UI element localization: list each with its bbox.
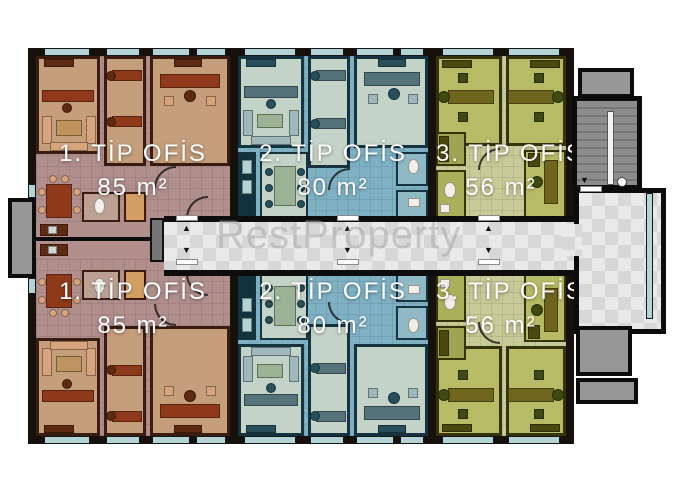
visitor-chair (534, 370, 544, 380)
cabinet (246, 59, 276, 67)
unit-type-label: 1. TİP OFİS (36, 140, 230, 168)
window (508, 48, 560, 56)
door-arrow-up-icon: ▲ (343, 224, 352, 233)
corridor (164, 216, 578, 276)
door-leaf (337, 215, 359, 221)
floor-plan: 1. TİP OFİS 85 m² (0, 0, 679, 480)
chair (106, 365, 116, 375)
cabinet (174, 59, 202, 67)
window (310, 48, 344, 56)
party-wall (36, 237, 150, 241)
sofa (243, 110, 253, 136)
sofa (50, 341, 88, 350)
door-arrow-up-icon: ▲ (182, 224, 191, 233)
cabinet (174, 425, 202, 433)
visitor-chair (368, 388, 378, 398)
desk (448, 388, 494, 402)
cabinet (530, 424, 560, 432)
desk (112, 365, 142, 376)
visitor-chair (458, 370, 468, 380)
unit-type3-top: 3. TİP OFİS 56 m² (436, 56, 566, 222)
visitor-chair (458, 73, 468, 83)
chair (310, 363, 320, 373)
chair (552, 91, 564, 103)
unit-type1-bottom: 1. TİP OFİS 85 m² (36, 258, 230, 436)
cabinet (378, 59, 406, 67)
desk (364, 72, 420, 86)
door-arrow-down-icon: ▼ (484, 246, 493, 255)
balcony-bottom-1 (576, 326, 632, 376)
door-leaf (580, 186, 602, 192)
door-arrow-down-icon: ▼ (182, 246, 191, 255)
window (508, 436, 560, 444)
desk (244, 86, 298, 98)
unit-area-label: 85 m² (36, 312, 230, 340)
unit-area-label: 80 m² (238, 174, 428, 202)
visitor-chair (458, 112, 468, 122)
door-leaf (337, 259, 359, 265)
visitor-chair (458, 409, 468, 419)
cabinet (44, 425, 74, 433)
window (106, 436, 140, 444)
chair (266, 383, 276, 393)
stair-newel (617, 177, 627, 187)
window (152, 48, 190, 56)
cabinet (44, 59, 74, 67)
window (44, 436, 90, 444)
glass-wall (646, 193, 653, 319)
desk (508, 388, 554, 402)
desk (112, 70, 142, 81)
chair (62, 103, 72, 113)
stair-handrail (607, 111, 614, 185)
door-leaf (478, 259, 500, 265)
unit-type2-top: 2. TİP OFİS 80 m² (238, 56, 428, 222)
window (152, 436, 190, 444)
unit-area-label: 56 m² (436, 312, 566, 340)
visitor-chair (408, 388, 418, 398)
desk (160, 74, 220, 88)
desk (316, 118, 346, 129)
chair (310, 119, 320, 129)
visitor-chair (534, 73, 544, 83)
window (400, 436, 424, 444)
coffee-table (56, 120, 82, 136)
window (310, 436, 344, 444)
chair (310, 71, 320, 81)
desk (42, 390, 94, 402)
visitor-chair (368, 94, 378, 104)
chair (266, 99, 276, 109)
chair (184, 90, 196, 102)
cabinet (442, 424, 472, 432)
sofa (42, 348, 52, 376)
cabinet (378, 425, 406, 433)
window (244, 48, 296, 56)
chair (438, 389, 450, 401)
desk (160, 404, 220, 418)
window (106, 48, 140, 56)
unit-type-label: 2. TİP OFİS (238, 278, 428, 306)
cabinet (442, 60, 472, 68)
unit-type-label: 1. TİP OFİS (36, 278, 230, 306)
visitor-chair (206, 386, 216, 396)
elevator-shaft (150, 218, 164, 262)
coffee-table (257, 114, 283, 128)
sofa (251, 347, 291, 356)
chair (552, 389, 564, 401)
unit-type3-bottom: 3. TİP OFİS 56 m² (436, 258, 566, 436)
coffee-table (56, 356, 82, 372)
visitor-chair (164, 96, 174, 106)
window (196, 48, 226, 56)
unit-area-label: 56 m² (436, 174, 566, 202)
sofa (243, 356, 253, 382)
unit-type-label: 2. TİP OFİS (238, 140, 428, 168)
window (442, 436, 494, 444)
chair (38, 206, 46, 214)
window (196, 436, 226, 444)
door-leaf (176, 215, 198, 221)
sofa (289, 356, 299, 382)
visitor-chair (534, 409, 544, 419)
chair (438, 91, 450, 103)
door-arrow-up-icon: ▲ (484, 224, 493, 233)
window (28, 278, 36, 294)
desk (364, 406, 420, 420)
chair (388, 392, 400, 404)
chair (73, 206, 81, 214)
desk (448, 90, 494, 104)
chair (62, 379, 72, 389)
sink (48, 246, 57, 254)
desk (316, 70, 346, 81)
door-leaf (478, 215, 500, 221)
sofa (289, 110, 299, 136)
visitor-chair (206, 96, 216, 106)
sink (440, 204, 450, 213)
balcony-top (578, 68, 634, 98)
coffee-table (257, 364, 283, 378)
chair (184, 390, 196, 402)
window (44, 48, 90, 56)
unit-type2-bottom: 2. TİP OFİS 80 m² (238, 258, 428, 436)
unit-area-label: 85 m² (36, 174, 230, 202)
stair-direction-arrow-icon: ▼ (580, 176, 589, 185)
window (244, 436, 296, 444)
unit-type-label: 3. TİP OFİS (436, 140, 566, 168)
window (356, 436, 394, 444)
cabinet (530, 60, 560, 68)
visitor-chair (408, 94, 418, 104)
cabinet (246, 425, 276, 433)
visitor-chair (164, 386, 174, 396)
unit-type1-top: 1. TİP OFİS 85 m² (36, 56, 230, 222)
desk (316, 363, 346, 374)
desk (316, 411, 346, 422)
door-arrow-down-icon: ▼ (343, 246, 352, 255)
door-leaf (176, 259, 198, 265)
chair (310, 411, 320, 421)
balcony-bottom-2 (576, 378, 638, 404)
window (400, 48, 424, 56)
desk (42, 90, 94, 102)
desk (508, 90, 554, 104)
window (28, 184, 36, 198)
chair (106, 117, 116, 127)
unit-area-label: 80 m² (238, 312, 428, 340)
unit-type-label: 3. TİP OFİS (436, 278, 566, 306)
office-room (150, 326, 230, 436)
visitor-chair (534, 112, 544, 122)
desk (112, 116, 142, 127)
chair (106, 411, 116, 421)
desk (112, 411, 142, 422)
chair (106, 71, 116, 81)
window (442, 48, 494, 56)
corridor-landing-junction (562, 224, 582, 256)
desk (244, 394, 298, 406)
sofa (86, 348, 96, 376)
entrance-stoop (8, 198, 36, 278)
window (356, 48, 394, 56)
chair (388, 88, 400, 100)
sink (48, 226, 57, 234)
